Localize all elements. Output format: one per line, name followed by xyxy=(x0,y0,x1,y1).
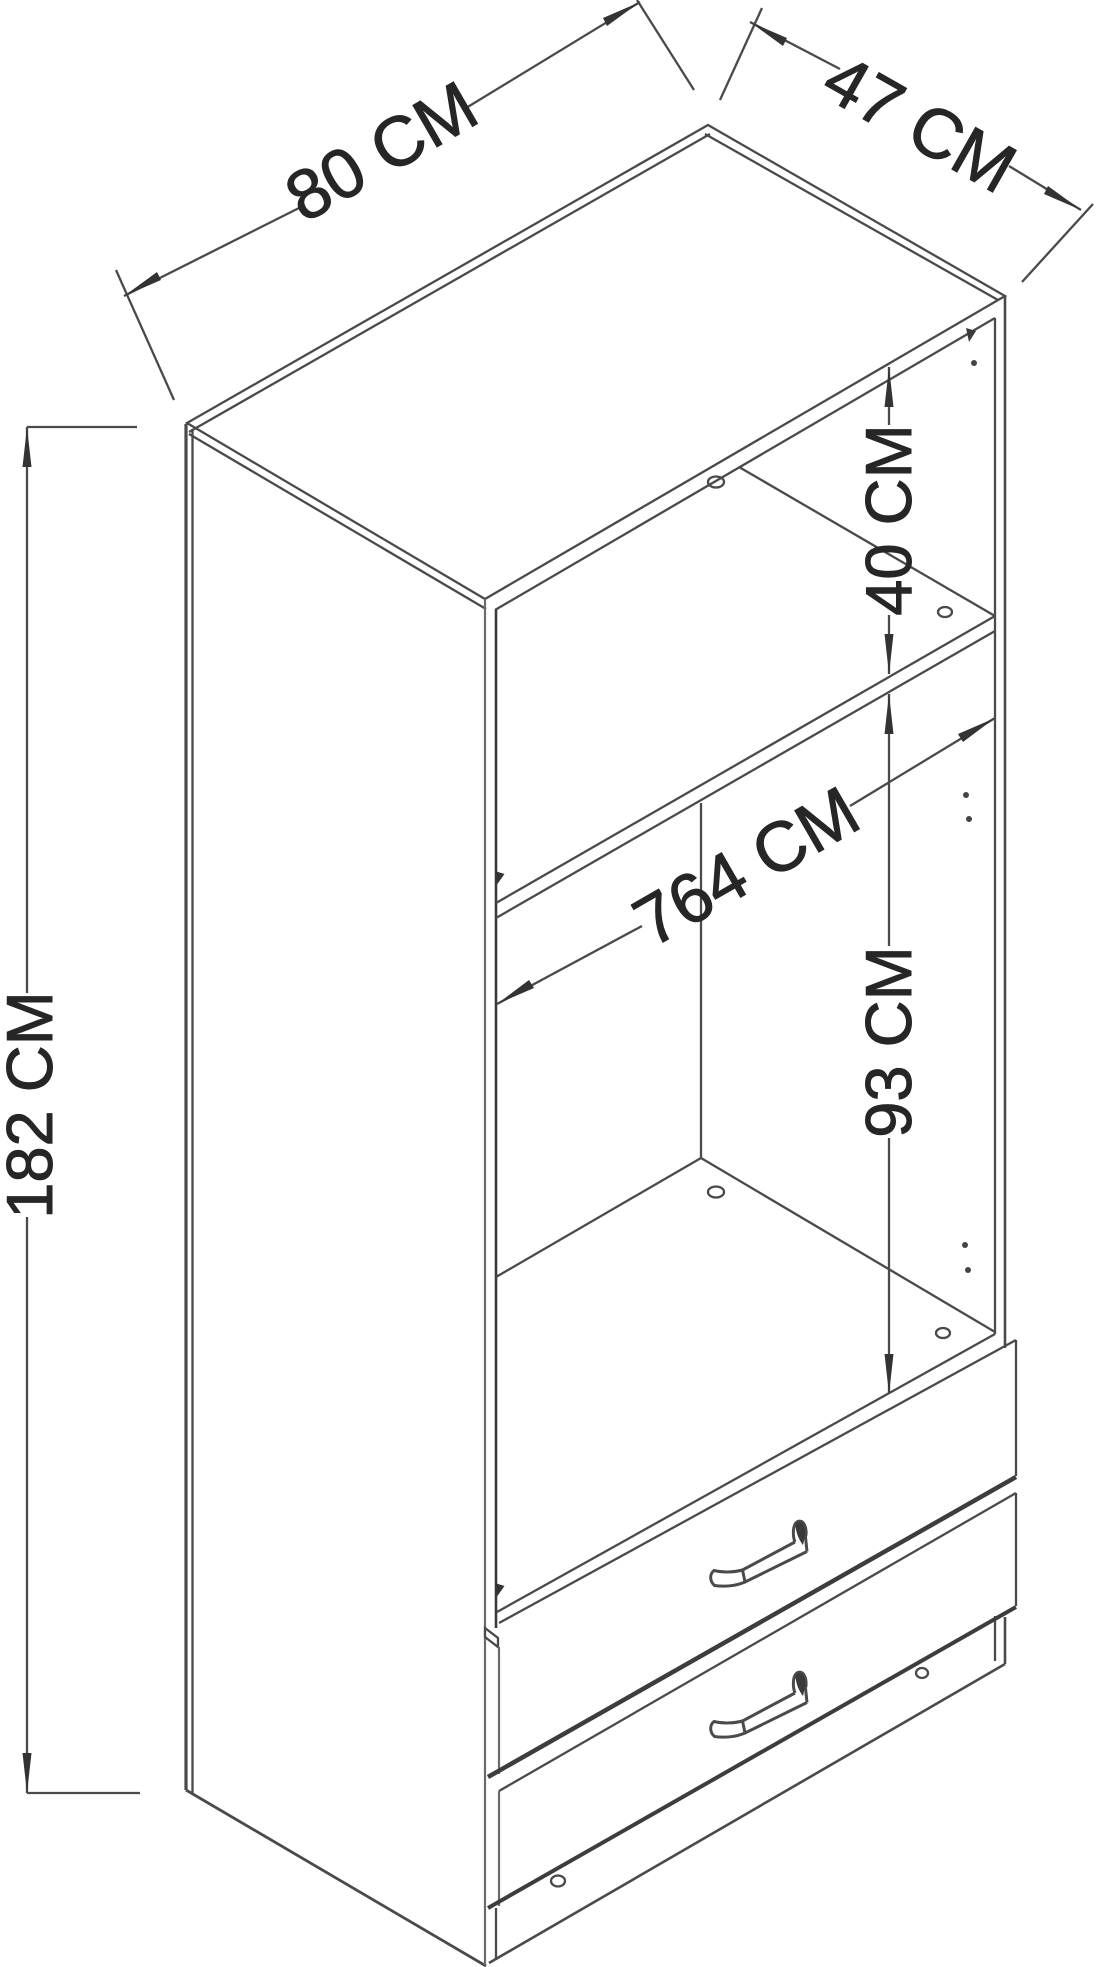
svg-text:93 CM: 93 CM xyxy=(852,946,925,1137)
svg-text:40 CM: 40 CM xyxy=(852,424,925,615)
svg-text:182 CM: 182 CM xyxy=(0,991,66,1219)
